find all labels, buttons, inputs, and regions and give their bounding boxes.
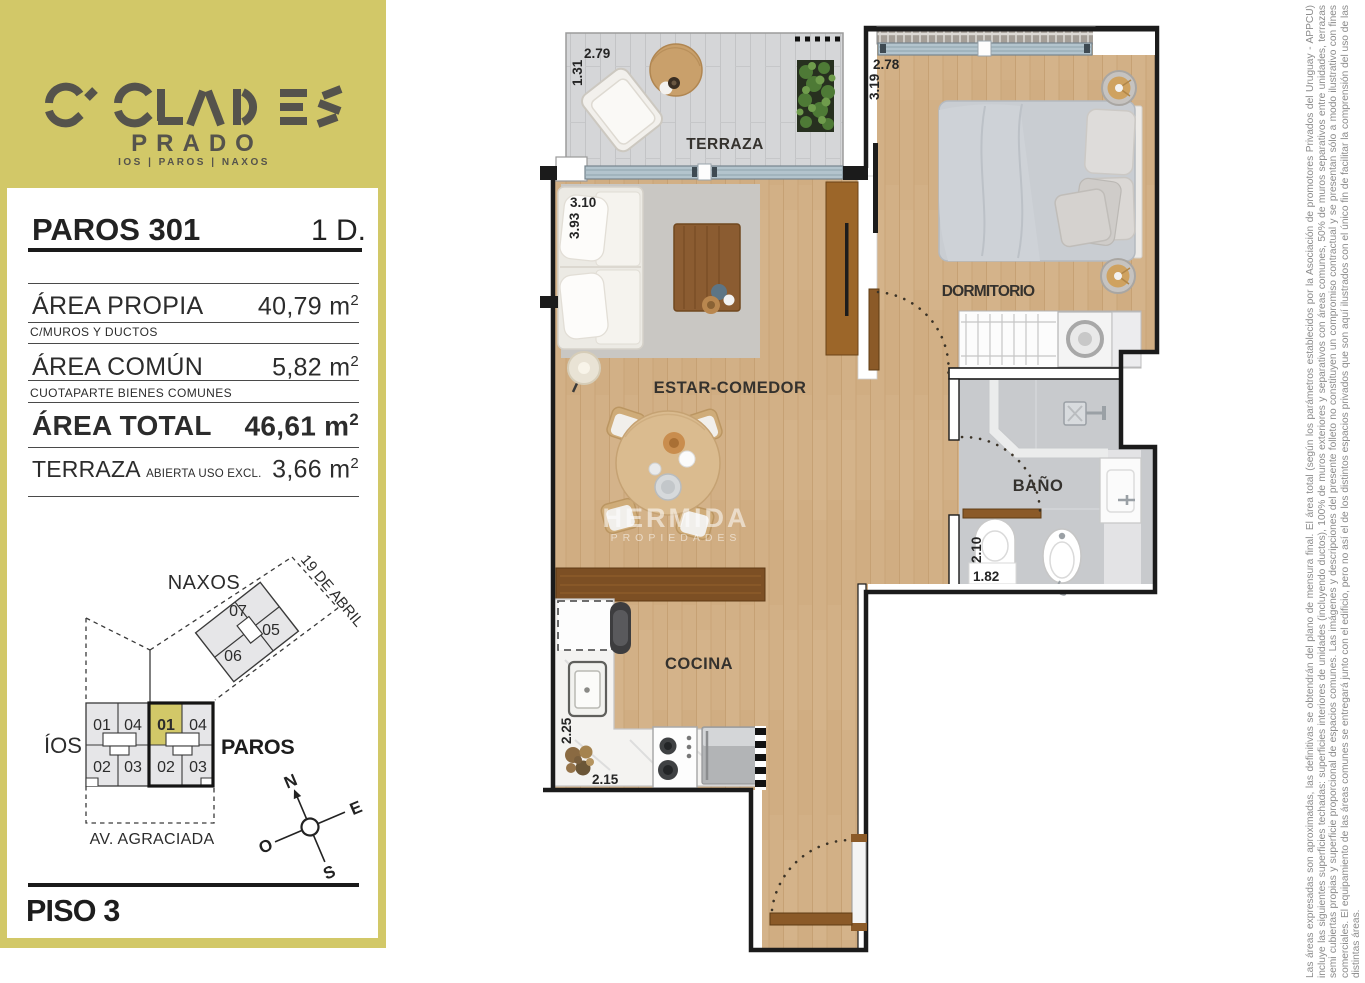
svg-text:ÍOS: ÍOS (44, 733, 82, 758)
svg-text:07: 07 (229, 603, 247, 620)
svg-text:COCINA: COCINA (665, 655, 733, 673)
svg-text:HERMIDA: HERMIDA (603, 503, 750, 533)
svg-text:3.93: 3.93 (567, 212, 582, 239)
svg-text:1.31: 1.31 (570, 59, 585, 86)
svg-text:PROPIEDADES: PROPIEDADES (611, 532, 742, 544)
svg-text:2.78: 2.78 (873, 57, 900, 72)
svg-text:3.10: 3.10 (570, 195, 596, 210)
svg-text:2.25: 2.25 (559, 717, 574, 744)
svg-text:06: 06 (224, 648, 242, 665)
svg-text:2.79: 2.79 (584, 46, 610, 61)
svg-text:2.10: 2.10 (969, 537, 984, 563)
svg-text:2.15: 2.15 (592, 772, 619, 787)
svg-text:1.82: 1.82 (973, 569, 999, 584)
svg-text:03: 03 (124, 759, 142, 776)
svg-text:04: 04 (124, 717, 142, 734)
svg-text:01: 01 (93, 717, 111, 734)
svg-text:DORMITORIO: DORMITORIO (942, 283, 1035, 300)
svg-text:S: S (320, 862, 338, 884)
svg-text:PRADO: PRADO (131, 130, 263, 157)
svg-text:3.19: 3.19 (867, 74, 882, 100)
svg-text:BAÑO: BAÑO (1013, 475, 1064, 495)
svg-text:TERRAZA: TERRAZA (686, 136, 764, 153)
svg-text:O: O (256, 835, 276, 858)
svg-text:04: 04 (189, 717, 207, 734)
svg-text:E: E (347, 797, 365, 819)
svg-text:AV. AGRACIADA: AV. AGRACIADA (90, 831, 215, 848)
svg-text:01: 01 (157, 717, 175, 734)
svg-text:02: 02 (157, 759, 175, 776)
svg-text:03: 03 (189, 759, 207, 776)
svg-text:ESTAR-COMEDOR: ESTAR-COMEDOR (654, 379, 807, 397)
svg-text:NAXOS: NAXOS (168, 572, 241, 594)
svg-text:05: 05 (262, 622, 280, 639)
svg-text:N: N (281, 770, 300, 792)
svg-text:PAROS: PAROS (221, 735, 294, 759)
svg-text:19 DE ABRIL: 19 DE ABRIL (297, 552, 367, 631)
svg-text:IOS | PAROS | NAXOS: IOS | PAROS | NAXOS (118, 157, 270, 168)
svg-text:02: 02 (93, 759, 111, 776)
